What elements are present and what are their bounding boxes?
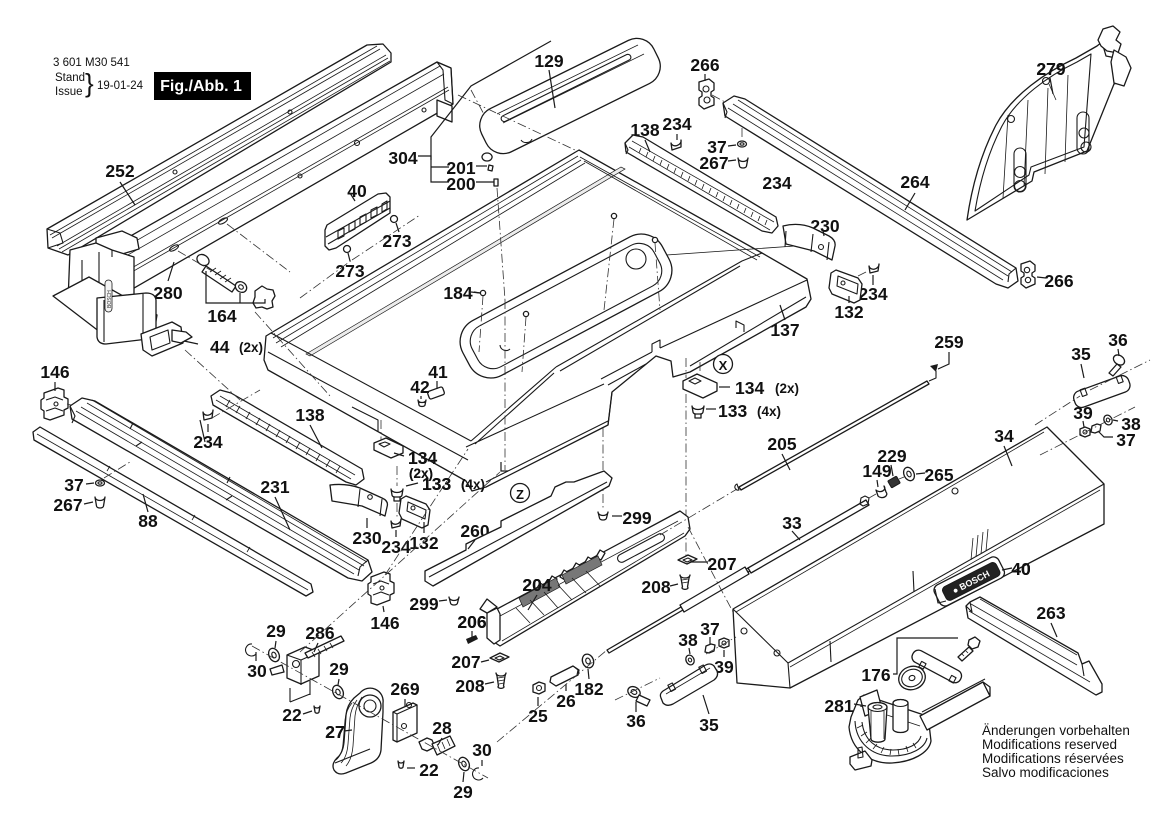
svg-text:Z: Z — [516, 487, 524, 502]
svg-text:132: 132 — [834, 302, 863, 322]
svg-text:40: 40 — [1011, 559, 1031, 579]
svg-text:206: 206 — [457, 612, 486, 632]
svg-text:234: 234 — [762, 173, 791, 193]
svg-text:BOSCH: BOSCH — [107, 290, 113, 308]
svg-text:Fig./Abb. 1: Fig./Abb. 1 — [160, 78, 242, 95]
svg-text:266: 266 — [1044, 271, 1073, 291]
svg-text:Salvo modificaciones: Salvo modificaciones — [982, 765, 1109, 780]
svg-text:299: 299 — [409, 594, 438, 614]
svg-text:176: 176 — [861, 665, 890, 685]
svg-text:29: 29 — [329, 659, 349, 679]
svg-text:265: 265 — [924, 465, 953, 485]
svg-text:286: 286 — [305, 623, 334, 643]
svg-text:133: 133 — [422, 474, 451, 494]
svg-text:304: 304 — [388, 148, 417, 168]
svg-text:36: 36 — [1108, 330, 1128, 350]
svg-text:44: 44 — [210, 337, 230, 357]
svg-text:267: 267 — [699, 153, 728, 173]
svg-text:Modifications reserved: Modifications reserved — [982, 737, 1117, 752]
svg-text:164: 164 — [207, 306, 236, 326]
svg-text:Issue: Issue — [55, 86, 83, 98]
svg-text:234: 234 — [193, 432, 222, 452]
svg-text:37: 37 — [64, 475, 83, 495]
svg-text:27: 27 — [325, 722, 344, 742]
svg-text:149: 149 — [862, 461, 891, 481]
svg-text:42: 42 — [410, 377, 430, 397]
svg-text:200: 200 — [446, 174, 475, 194]
svg-text:29: 29 — [266, 621, 286, 641]
svg-text:299: 299 — [622, 508, 651, 528]
svg-text:259: 259 — [934, 332, 963, 352]
svg-text:30: 30 — [472, 740, 492, 760]
svg-text:22: 22 — [419, 760, 439, 780]
svg-text:(2x): (2x) — [239, 340, 263, 355]
svg-text:38: 38 — [678, 630, 698, 650]
svg-text:X: X — [719, 358, 728, 373]
svg-text:264: 264 — [900, 172, 929, 192]
svg-text:Modifications réservées: Modifications réservées — [982, 751, 1124, 766]
svg-text:263: 263 — [1036, 603, 1065, 623]
svg-text:Änderungen vorbehalten: Änderungen vorbehalten — [982, 723, 1130, 738]
svg-text:}: } — [85, 68, 94, 98]
svg-text:133: 133 — [718, 401, 747, 421]
svg-text:279: 279 — [1036, 59, 1065, 79]
svg-text:33: 33 — [782, 513, 802, 533]
svg-text:146: 146 — [40, 362, 69, 382]
svg-text:252: 252 — [105, 161, 134, 181]
svg-text:26: 26 — [556, 691, 576, 711]
svg-text:134: 134 — [735, 378, 764, 398]
svg-text:234: 234 — [662, 114, 691, 134]
svg-text:207: 207 — [451, 652, 480, 672]
svg-text:234: 234 — [381, 537, 410, 557]
svg-text:146: 146 — [370, 613, 399, 633]
svg-text:37: 37 — [1116, 430, 1135, 450]
svg-text:204: 204 — [522, 575, 551, 595]
svg-text:29: 29 — [453, 782, 473, 802]
svg-text:129: 129 — [534, 51, 563, 71]
svg-text:35: 35 — [1071, 344, 1091, 364]
svg-text:37: 37 — [700, 619, 719, 639]
svg-text:207: 207 — [707, 554, 736, 574]
svg-text:267: 267 — [53, 495, 82, 515]
svg-text:138: 138 — [295, 405, 324, 425]
svg-text:182: 182 — [574, 679, 603, 699]
svg-text:208: 208 — [641, 577, 670, 597]
svg-text:(4x): (4x) — [461, 477, 485, 492]
svg-text:266: 266 — [690, 55, 719, 75]
svg-text:280: 280 — [153, 283, 182, 303]
svg-text:205: 205 — [767, 434, 796, 454]
svg-text:184: 184 — [443, 283, 472, 303]
svg-text:34: 34 — [994, 426, 1014, 446]
svg-text:Stand: Stand — [55, 72, 85, 84]
svg-text:231: 231 — [260, 477, 289, 497]
svg-text:208: 208 — [455, 676, 484, 696]
svg-text:273: 273 — [382, 231, 411, 251]
svg-text:273: 273 — [335, 261, 364, 281]
svg-text:281: 281 — [824, 696, 853, 716]
svg-text:19-01-24: 19-01-24 — [97, 80, 144, 92]
svg-text:36: 36 — [626, 711, 646, 731]
svg-text:40: 40 — [347, 181, 367, 201]
svg-text:269: 269 — [390, 679, 419, 699]
svg-text:234: 234 — [858, 284, 887, 304]
svg-text:25: 25 — [528, 706, 548, 726]
svg-text:41: 41 — [428, 362, 448, 382]
svg-text:30: 30 — [247, 661, 267, 681]
svg-text:28: 28 — [432, 718, 452, 738]
svg-text:230: 230 — [352, 528, 381, 548]
svg-text:(4x): (4x) — [757, 404, 781, 419]
svg-text:88: 88 — [138, 511, 158, 531]
svg-text:(2x): (2x) — [775, 381, 799, 396]
svg-text:22: 22 — [282, 705, 302, 725]
svg-text:35: 35 — [699, 715, 719, 735]
svg-text:134: 134 — [408, 448, 437, 468]
